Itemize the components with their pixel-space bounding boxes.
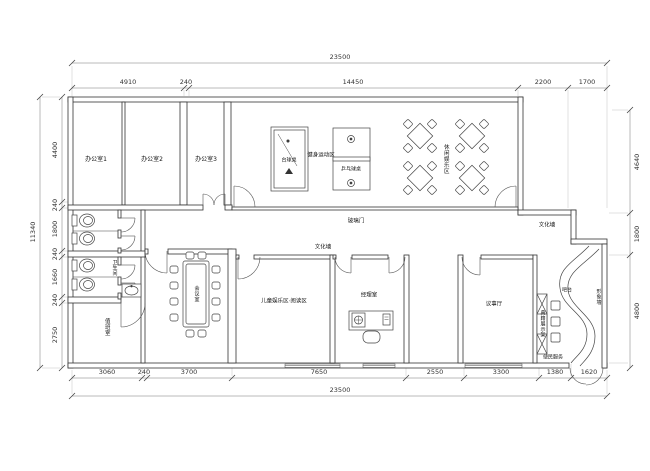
wall-kids-top (254, 255, 332, 259)
dim-bottom-1: 3060 (99, 369, 116, 376)
label-leisure-zone: 休闲娱乐区 (442, 144, 448, 174)
wall-meeting-right (228, 249, 236, 363)
wall-rightwing-top-b (571, 239, 607, 244)
wall-stall-6 (118, 293, 121, 299)
dim-bottom-8: 1620 (581, 369, 598, 376)
dim-bottom-6: 3300 (493, 369, 510, 376)
wall-toilet-right (141, 210, 145, 363)
wall-offices-south-stub (225, 205, 232, 210)
room-label-office2: 办公室2 (141, 157, 163, 163)
pingpong-table (333, 128, 370, 190)
room-label-office1: 办公室1 (85, 157, 107, 163)
room-label-office3: 办公室3 (195, 157, 217, 163)
leisure-table-set (455, 119, 489, 153)
wall-council-top (481, 255, 533, 259)
wall-stall-3 (118, 248, 121, 253)
dim-left-4: 240 (52, 248, 59, 260)
wall-glass-partition (232, 207, 518, 210)
room-label-council-hall: 议事厅 (486, 302, 503, 308)
floor-plan-canvas: 办公室1 办公室2 办公室3 台球桌 健身运动区 乒乓球桌 休闲娱乐区 玻璃门 … (0, 0, 650, 471)
dim-left-7: 2750 (52, 327, 59, 344)
dim-top-4: 2200 (535, 79, 552, 86)
label-bar-counter: 吧台 (562, 289, 572, 294)
room-label-kids-reading-zone: 儿童娱乐区·阅读区 (261, 299, 307, 305)
label-glass-door: 玻璃门 (348, 219, 365, 225)
dim-top-5: 1700 (579, 79, 596, 86)
dim-left-5: 1660 (52, 269, 59, 286)
label-culture-wall-center: 文化墙 (315, 245, 332, 251)
wall-offices-south (68, 205, 203, 210)
room-label-meeting-room: 会议室 (194, 286, 199, 303)
wall-stall-2 (118, 230, 121, 238)
wall-duty-top (68, 297, 121, 303)
wall-outer-left (68, 97, 73, 368)
wall-stall-5 (118, 277, 121, 285)
dim-top-total: 23500 (330, 54, 351, 61)
dim-bottom-total: 23500 (330, 387, 351, 394)
label-fitness-zone: 健身运动区 (307, 153, 335, 159)
dim-bottom-2: 240 (138, 369, 150, 376)
wall-rightwing-top-a (518, 210, 576, 215)
label-convenience-service: 便民服务 (543, 356, 563, 361)
dim-left-3: 1800 (52, 221, 59, 238)
wall-meeting-top-stub (145, 249, 148, 254)
dim-bottom-5: 2550 (427, 369, 444, 376)
leisure-table-set (403, 119, 437, 153)
wall-council-left (458, 255, 463, 363)
dim-top-3: 14450 (343, 79, 364, 86)
leisure-table-set (403, 161, 437, 195)
dim-left-total: 11340 (30, 222, 37, 243)
wall-outer-top (68, 97, 523, 102)
wall-stall-1 (118, 210, 121, 218)
dim-bottom-3: 3700 (181, 369, 198, 376)
wall-toilet-mid (68, 251, 145, 257)
wall-council-right (533, 255, 537, 363)
wall-office-divider-2 (180, 102, 187, 205)
room-label-duty-room: 值班室 (103, 318, 109, 336)
dim-left-6: 240 (52, 294, 59, 306)
label-image-wall: 形象墙 (596, 289, 601, 306)
wall-topband-right (518, 97, 523, 215)
dim-right-3: 4800 (634, 303, 641, 320)
wall-manager-right (404, 255, 409, 363)
room-label-restroom: 卫生间 (112, 260, 117, 277)
dim-right-1: 4640 (634, 154, 641, 171)
dim-bottom-4: 7650 (311, 369, 328, 376)
label-billiard-table: 台球桌 (281, 159, 296, 164)
bar-stools (551, 301, 560, 342)
sink (122, 284, 141, 297)
wall-manager-top-stub (333, 255, 336, 259)
wall-office-divider-1 (122, 102, 125, 205)
room-label-manager-office: 经理室 (361, 293, 378, 299)
dim-bottom-7: 1380 (547, 369, 564, 376)
wall-manager-top (352, 255, 388, 259)
dim-top-2: 240 (180, 79, 192, 86)
bar-counter-curve (560, 246, 599, 366)
dim-left-1: 4400 (52, 142, 59, 159)
dim-left-2: 240 (52, 199, 59, 211)
floor-plan-drawing (0, 0, 650, 471)
wall-kids-right (330, 255, 335, 363)
wall-stall-4 (118, 257, 121, 265)
label-culture-wall-right: 文化墙 (539, 223, 556, 229)
manager-chair (363, 331, 380, 343)
label-display-shelf: 典籍展示架 (540, 310, 545, 338)
wall-outer-right (602, 244, 607, 368)
leisure-table-set (455, 161, 489, 195)
dim-right-2: 1800 (634, 226, 641, 243)
wall-office-divider-3 (224, 102, 231, 205)
manager-desk (349, 311, 393, 343)
dim-top-1: 4910 (120, 79, 137, 86)
wall-kids-top-stub (236, 255, 239, 259)
label-pingpong-table: 乒乓球桌 (341, 168, 361, 173)
